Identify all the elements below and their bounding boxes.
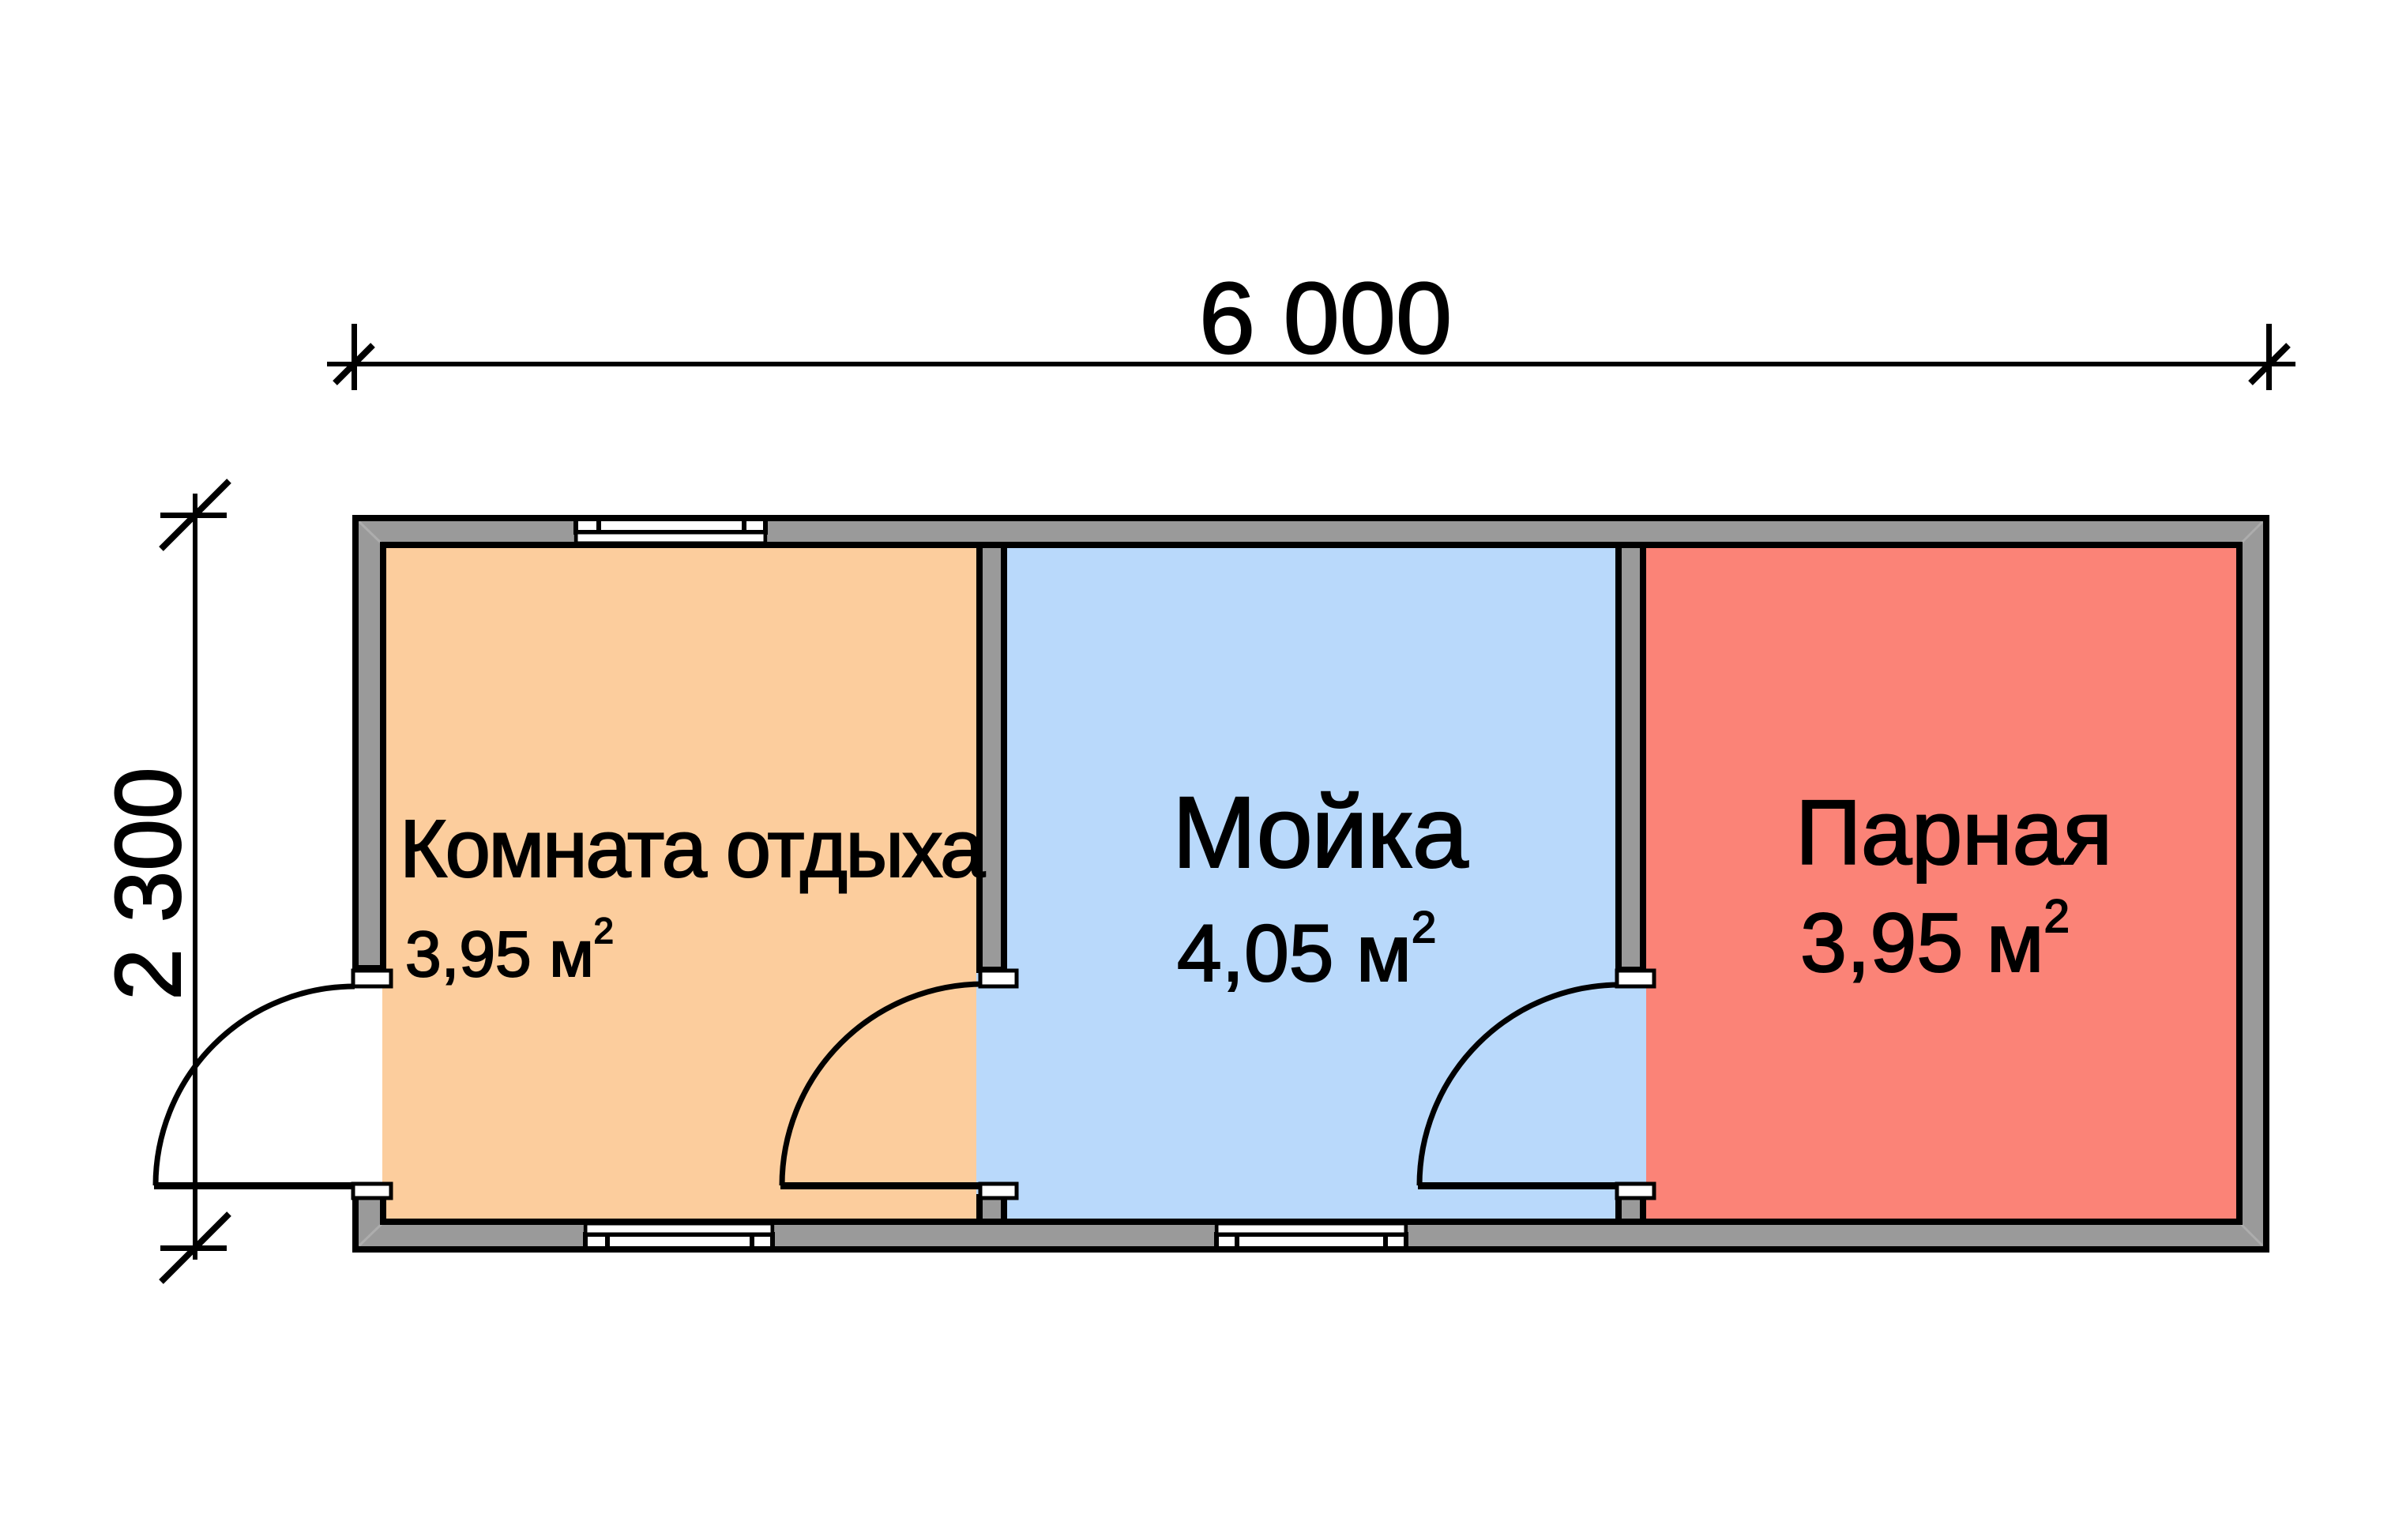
svg-text:Парная: Парная xyxy=(1795,781,2112,884)
svg-text:3,95 м2: 3,95 м2 xyxy=(405,911,614,990)
svg-text:Комната отдыха: Комната отдыха xyxy=(400,803,986,894)
svg-text:4,05 м2: 4,05 м2 xyxy=(1177,902,1436,998)
svg-text:6 000: 6 000 xyxy=(1199,262,1452,375)
svg-text:2 300: 2 300 xyxy=(96,767,201,1000)
svg-text:3,95 м2: 3,95 м2 xyxy=(1800,891,2070,990)
svg-text:Мойка: Мойка xyxy=(1172,776,1469,889)
